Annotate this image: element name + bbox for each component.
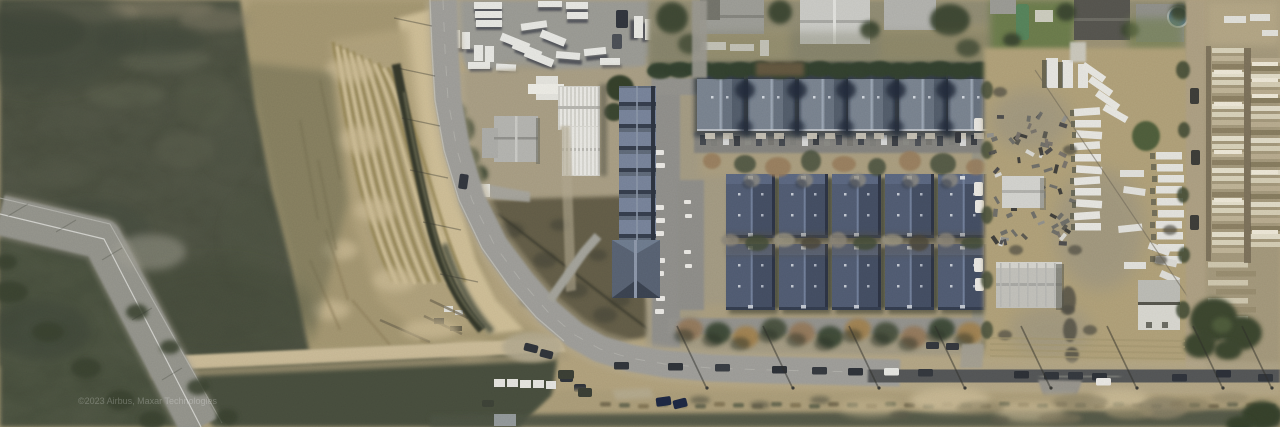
svg-text:©2023 Airbus, Maxar Technologi: ©2023 Airbus, Maxar Technologies bbox=[78, 396, 218, 406]
